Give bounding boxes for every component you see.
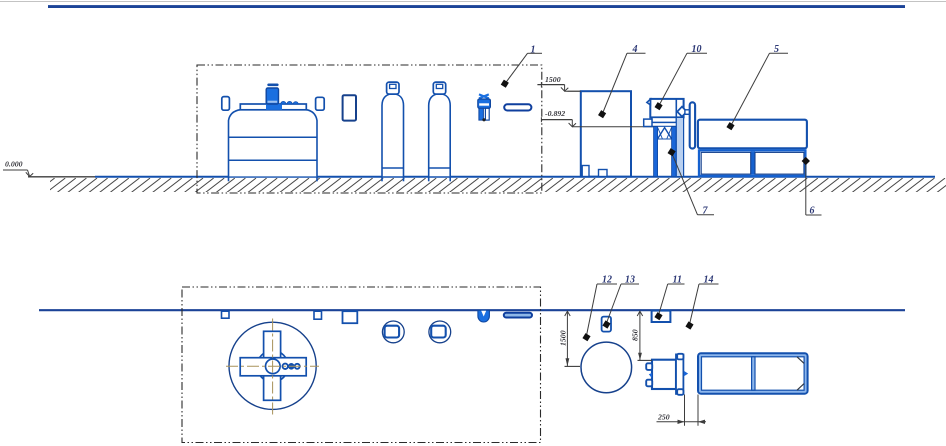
svg-text:250: 250 — [657, 413, 670, 422]
svg-text:1500: 1500 — [545, 75, 561, 84]
svg-text:1500: 1500 — [559, 330, 568, 346]
svg-text:0.000: 0.000 — [5, 160, 23, 169]
svg-text:850: 850 — [631, 329, 640, 341]
svg-text:-0.892: -0.892 — [545, 109, 565, 118]
